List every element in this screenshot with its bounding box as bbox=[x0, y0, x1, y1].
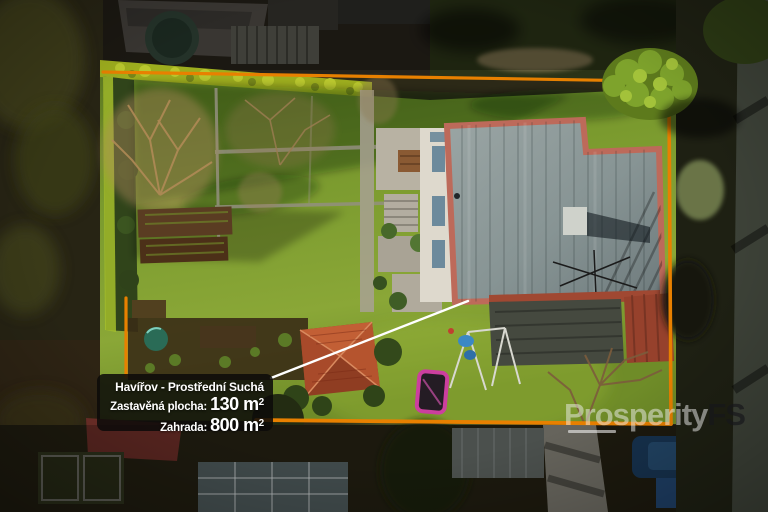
brand-name-suffix: FS bbox=[707, 397, 745, 432]
garden-area-exponent: 2 bbox=[259, 418, 264, 429]
built-area-exponent: 2 bbox=[259, 397, 264, 408]
garden-area-value: 800 m bbox=[210, 415, 259, 435]
property-info-card: Havířov - Prostřední Suchá Zastavěná plo… bbox=[97, 374, 273, 431]
aerial-photo-listing: Havířov - Prostřední Suchá Zastavěná plo… bbox=[0, 0, 768, 512]
built-area-value: 130 m bbox=[210, 394, 259, 414]
built-area-label: Zastavěná plocha: bbox=[110, 401, 207, 413]
brand-name-primary: Prosperity bbox=[564, 397, 707, 432]
property-location: Havířov - Prostřední Suchá bbox=[103, 379, 264, 395]
brand-underline bbox=[568, 430, 616, 433]
built-area-row: Zastavěná plocha: 130 m2 bbox=[103, 395, 264, 416]
garden-area-label: Zahrada: bbox=[160, 422, 207, 434]
brand-watermark: ProsperityFS bbox=[564, 397, 768, 441]
garden-area-row: Zahrada: 800 m2 bbox=[103, 416, 264, 437]
